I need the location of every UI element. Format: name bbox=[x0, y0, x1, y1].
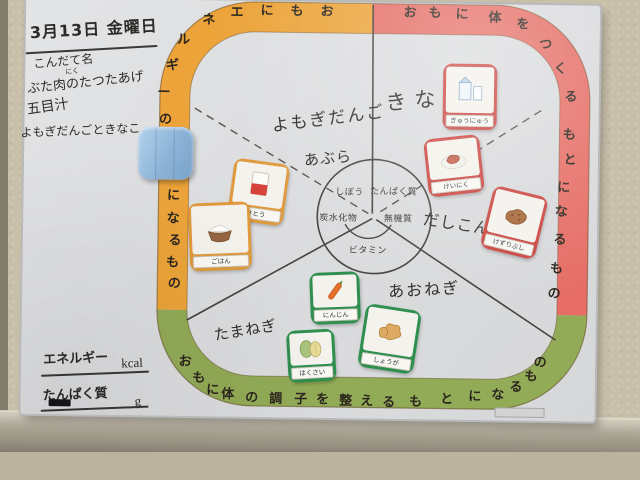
whiteboard-eraser bbox=[138, 126, 194, 180]
band-title-char: ギ bbox=[166, 59, 179, 72]
chicken-illustration bbox=[426, 137, 480, 180]
carrot-illustration bbox=[312, 274, 357, 308]
band-title-char: に bbox=[455, 8, 468, 21]
band-title-char: く bbox=[554, 63, 567, 76]
energy-label: エネルギー bbox=[43, 351, 109, 368]
band-title-char: の bbox=[245, 391, 258, 404]
band-title-char: な bbox=[167, 212, 180, 225]
band-title-char: も bbox=[429, 7, 442, 20]
band-title-char: 子 bbox=[294, 393, 307, 406]
wall-shadow-strip bbox=[0, 0, 8, 456]
band-title-char: も bbox=[550, 263, 563, 276]
band-title-char: の bbox=[168, 277, 181, 290]
band-title-char: な bbox=[555, 206, 568, 219]
band-title-char: え bbox=[360, 395, 373, 408]
band-title-char: の bbox=[159, 113, 172, 126]
hakusai-illustration bbox=[289, 332, 333, 366]
band-title-char: る bbox=[382, 396, 395, 409]
band-title-char: お bbox=[404, 6, 417, 19]
card-label: にんじん bbox=[314, 308, 358, 322]
band-title-char: を bbox=[316, 393, 329, 406]
band-title-char: つ bbox=[539, 38, 552, 51]
food-card-milk: ぎゅうにゅう bbox=[442, 64, 497, 131]
band-title-char: に bbox=[468, 390, 481, 403]
food-card-chicken: けいにく bbox=[423, 134, 485, 198]
card-label: ごはん bbox=[193, 254, 249, 268]
band-title-char: の bbox=[534, 356, 547, 369]
band-title-char: も bbox=[409, 396, 422, 409]
nutrient-label-vitamin: ビタミン bbox=[349, 243, 387, 257]
food-card-rice: ごはん bbox=[188, 201, 253, 271]
band-title-char: 体 bbox=[221, 388, 234, 401]
wall-below-ledge bbox=[0, 452, 640, 480]
nutrient-label-protein: たんぱく質 bbox=[370, 184, 418, 198]
nutrient-label-mineral: 無機質 bbox=[384, 211, 413, 224]
milk-illustration bbox=[446, 67, 495, 114]
band-title-char: と bbox=[440, 393, 453, 406]
food-card-carrot: にんじん bbox=[309, 271, 361, 325]
band-title-char: お bbox=[321, 5, 334, 18]
band-title-char: も bbox=[192, 372, 205, 385]
band-title-char: る bbox=[564, 91, 577, 104]
nutrient-label-carbohydrate: 炭水化物 bbox=[319, 210, 357, 224]
center-arc bbox=[345, 224, 391, 239]
band-title-char: も bbox=[166, 256, 179, 269]
band-title-char: に bbox=[261, 4, 274, 17]
band-title-char: な bbox=[491, 389, 504, 402]
band-title-char: に bbox=[557, 182, 570, 195]
food-card-hakusai: はくさい bbox=[286, 328, 337, 383]
food-card-ginger: しょうが bbox=[357, 303, 422, 375]
band-title-char: も bbox=[291, 5, 304, 18]
band-title-char: も bbox=[524, 370, 537, 383]
band-title-char: ネ bbox=[202, 14, 215, 27]
furigana-niku: にく bbox=[65, 67, 80, 76]
band-title-char: る bbox=[509, 381, 522, 394]
black-label-sticker bbox=[49, 399, 71, 406]
whiteboard: おもにエネルギーのもとになるもの おもに体をつくるもとになるもの おもに体の調子… bbox=[20, 0, 600, 422]
band-title-char: ー bbox=[157, 86, 170, 99]
nutrient-label-fat: しぼう bbox=[335, 185, 364, 198]
band-title-char: お bbox=[179, 355, 192, 368]
energy-unit: kcal bbox=[121, 356, 143, 372]
rice-illustration bbox=[191, 204, 249, 254]
band-title-char: 整 bbox=[339, 395, 352, 408]
band-title-char: と bbox=[563, 154, 576, 167]
band-title-char: る bbox=[168, 234, 181, 247]
band-title-char: る bbox=[553, 234, 566, 247]
card-label: はくさい bbox=[291, 366, 334, 380]
card-label: ぎゅうにゅう bbox=[446, 115, 494, 128]
band-title-char: の bbox=[548, 288, 561, 301]
band-title-char: ル bbox=[177, 33, 190, 46]
ginger-illustration bbox=[363, 306, 419, 357]
card-label: けいにく bbox=[431, 177, 482, 194]
band-title-char: 調 bbox=[269, 393, 282, 406]
band-title-char: に bbox=[167, 189, 180, 202]
band-title-char: 体 bbox=[488, 12, 501, 25]
band-title-char: に bbox=[206, 384, 219, 397]
maker-stamp bbox=[494, 407, 544, 418]
band-title-char: を bbox=[516, 18, 529, 31]
band-title-char: エ bbox=[230, 6, 243, 19]
band-title-char: も bbox=[563, 129, 576, 142]
